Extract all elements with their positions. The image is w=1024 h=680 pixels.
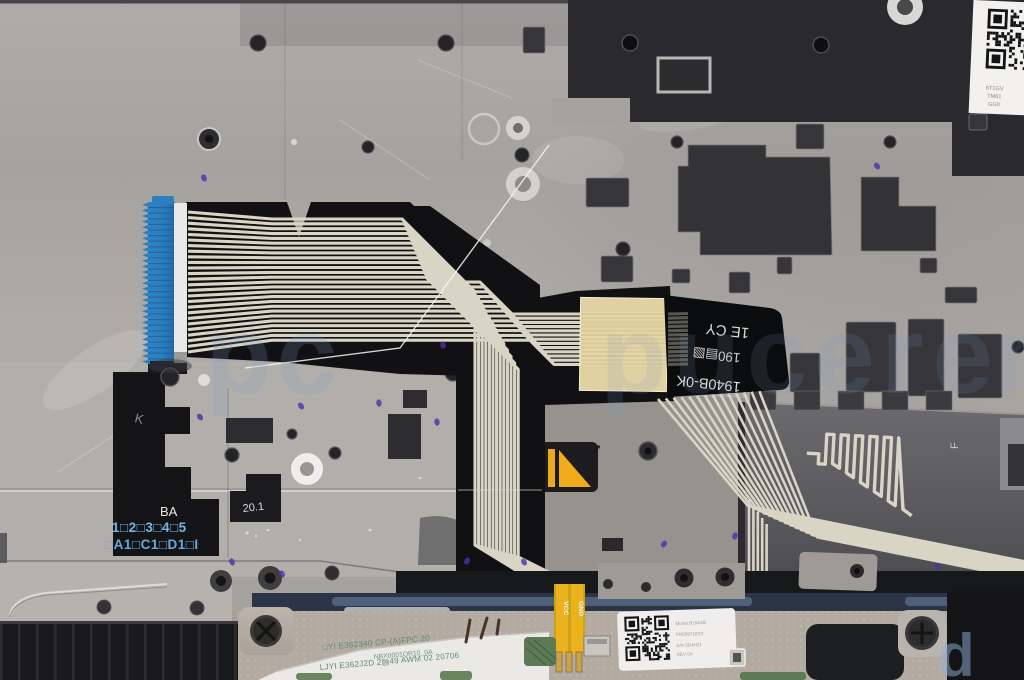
svg-text:pc: pc [205, 294, 341, 417]
svg-text:BA: BA [160, 504, 178, 519]
svg-text:1□2□3□4□5: 1□2□3□4□5 [112, 520, 187, 535]
svg-text:GG0: GG0 [988, 102, 1000, 109]
svg-text:GND: GND [577, 601, 584, 616]
svg-text:F: F [949, 442, 961, 449]
svg-text:TM61: TM61 [987, 94, 1002, 101]
svg-text:VCC: VCC [562, 601, 569, 615]
svg-text:6T1GV: 6T1GV [986, 86, 1004, 93]
svg-text:er: er [932, 294, 1024, 417]
svg-text:REV 0A: REV 0A [676, 651, 693, 657]
svg-text:S/N 3D4H21: S/N 3D4H21 [676, 642, 702, 648]
svg-text:PN00971B10: PN00971B10 [676, 631, 704, 637]
svg-text:20.1: 20.1 [242, 501, 265, 515]
svg-text:□A1□C1□D1□I: □A1□C1□D1□I [105, 537, 199, 552]
svg-text:d: d [938, 622, 975, 680]
svg-text:pucer: pucer [600, 294, 930, 417]
svg-text:Model B19A2B: Model B19A2B [675, 620, 706, 626]
